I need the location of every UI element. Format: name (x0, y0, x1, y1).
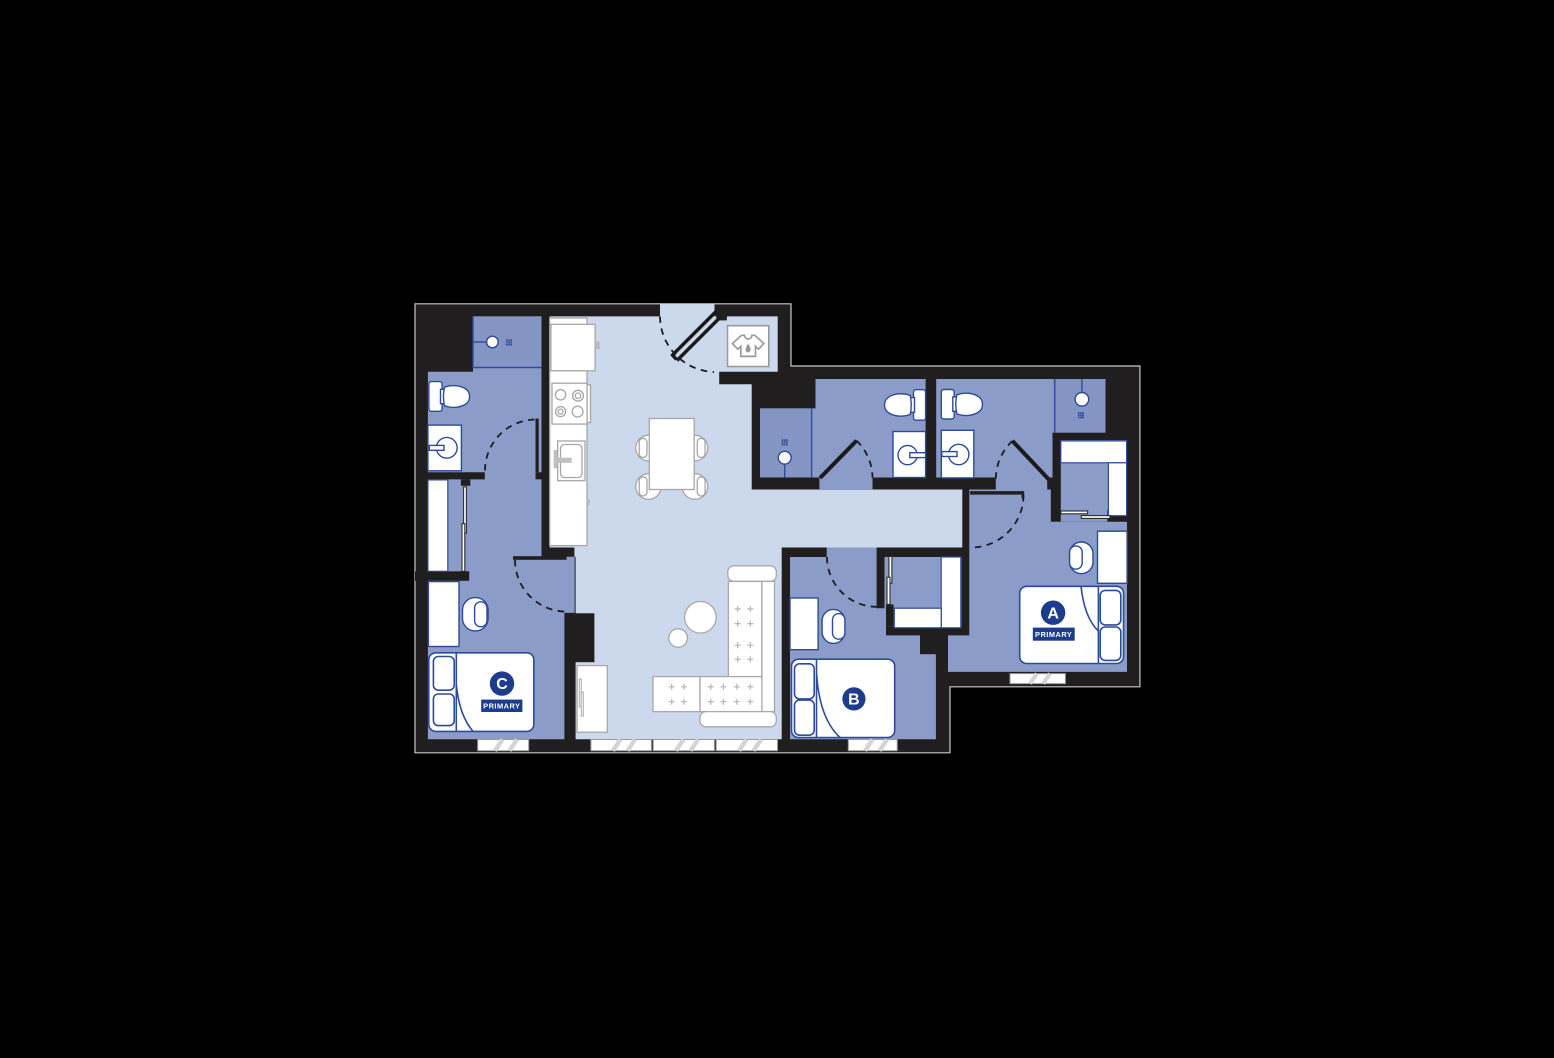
svg-text:C: C (496, 676, 508, 693)
svg-text:B: B (848, 692, 860, 709)
svg-text:A: A (1047, 605, 1059, 622)
svg-text:PRIMARY: PRIMARY (1035, 630, 1072, 639)
svg-text:PRIMARY: PRIMARY (483, 701, 520, 710)
